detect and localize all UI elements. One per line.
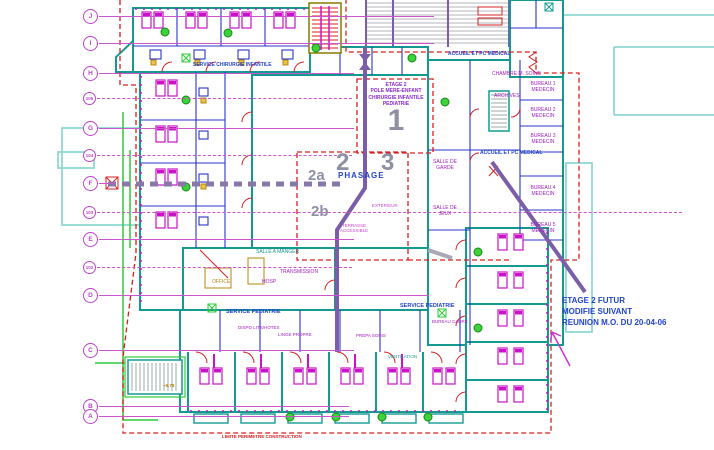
grid-line [99,406,349,407]
revision-note-line: REUNION M.O. DU 20-04-06 [562,318,666,329]
grid-line [99,43,434,44]
hosp-label: HOSP [262,280,276,286]
ventilation-label: VENTILATION [388,354,417,359]
grid-line [97,98,352,99]
grid-bubble: 104 [83,149,96,162]
grid-line [97,212,682,213]
exterieur-label: EXTERIEUR [372,203,398,208]
archives-label: ARCHIVES [494,94,520,100]
revision-note: ETAGE 2 FUTUR MODIFIE SUIVANT REUNION M.… [562,296,666,328]
grid-line [99,295,429,296]
grid-bubble: D [83,288,98,303]
grid-row-D: D [83,288,429,303]
grid-line [99,416,349,417]
salle-a-manger-label: SALLE A MANGER [256,250,299,256]
grid-bubble: E [83,232,98,247]
grid-line [97,267,352,268]
grid-row-I: I [83,36,434,51]
grid-line [99,128,354,129]
grid-row-J: J [83,9,434,24]
grid-bubble: 103 [83,206,96,219]
title-line: CHIRURGIE INFANTILE [358,95,434,101]
grid-bubble: 102 [83,261,96,274]
grid-line [99,183,114,184]
service-chirurgie-label: SERVICE CHIRURGIE INFANTILE [193,63,272,69]
grid-row-C: C [83,343,354,358]
floor-plan-canvas: J I H 105 G 104 F 103 E 102 D C B A ETAG… [0,0,714,450]
phasage-label: PHASAGE [338,171,385,180]
bureau4-label: BUREAU 4 MEDECIN [528,186,558,198]
bureau5-label: BUREAU 5 MEDECIN [528,223,558,235]
grid-row-E: E [83,232,354,247]
grid-bubble: H [83,66,98,81]
phase-zone-1: 1 [358,104,434,138]
grid-bubble: I [83,36,98,51]
phase-zone-2a: 2a [308,167,325,184]
grid-row-104: 104 [83,149,352,162]
grid-bubble: F [83,176,98,191]
service-pediatrie-left-label: SERVICE PEDIATRIE [226,309,281,315]
office-label: OFFICE [212,280,230,286]
grid-line [99,16,434,17]
grid-line [97,155,352,156]
grid-line [99,239,354,240]
limite-perimetre-label: LIMITE PERIMETRE CONSTRUCTION [222,434,302,439]
bureau1-label: BUREAU 1 MEDECIN [528,82,558,94]
grid-bubble: 105 [83,92,96,105]
grid-line [99,73,354,74]
salle-de-jeux-label: SALLE DE JEUX [428,206,462,218]
grid-bubble: G [83,121,98,136]
bureau-cadre-label: BUREAU CADRE [432,319,468,324]
grid-row-G: G [83,121,354,136]
grid-row-105: 105 [83,92,352,105]
grid-row-A: A [83,409,349,424]
revision-note-line: MODIFIE SUIVANT [562,307,666,318]
grid-row-F: F [83,176,114,191]
bureau3-label: BUREAU 3 MEDECIN [528,134,558,146]
grid-bubble: C [83,343,98,358]
terrasse-label: TERRASSE ACCESSIBLE [332,223,376,233]
dispo-lits-label: DISPO LITS/HOTES [238,325,280,330]
grid-bubble: A [83,409,98,424]
service-pediatrie-right-label: SERVICE PEDIATRIE [400,303,455,309]
accueil-top-label: ACCUEIL ET PC MEDICAL [448,52,510,58]
grid-line [99,350,354,351]
niveau-label: +6.78 [163,383,174,388]
linge-propre-label: LINGE PROPRE [278,332,312,337]
prepa-soins-label: PREPA SOINS [356,333,386,338]
accueil-mid-label: ACCUEIL ET PC MEDICAL [480,151,542,157]
grid-bubble: J [83,9,98,24]
salle-de-garde-label: SALLE DE GARDE [428,160,462,172]
revision-note-line: ETAGE 2 FUTUR [562,296,666,307]
bureau2-label: BUREAU 2 MEDECIN [528,108,558,120]
phase-zone-2b: 2b [311,203,329,220]
transmission-label: TRANSMISSION [280,270,318,276]
chambre-soins-label: CHAMBRE M. SOINS [492,72,541,78]
